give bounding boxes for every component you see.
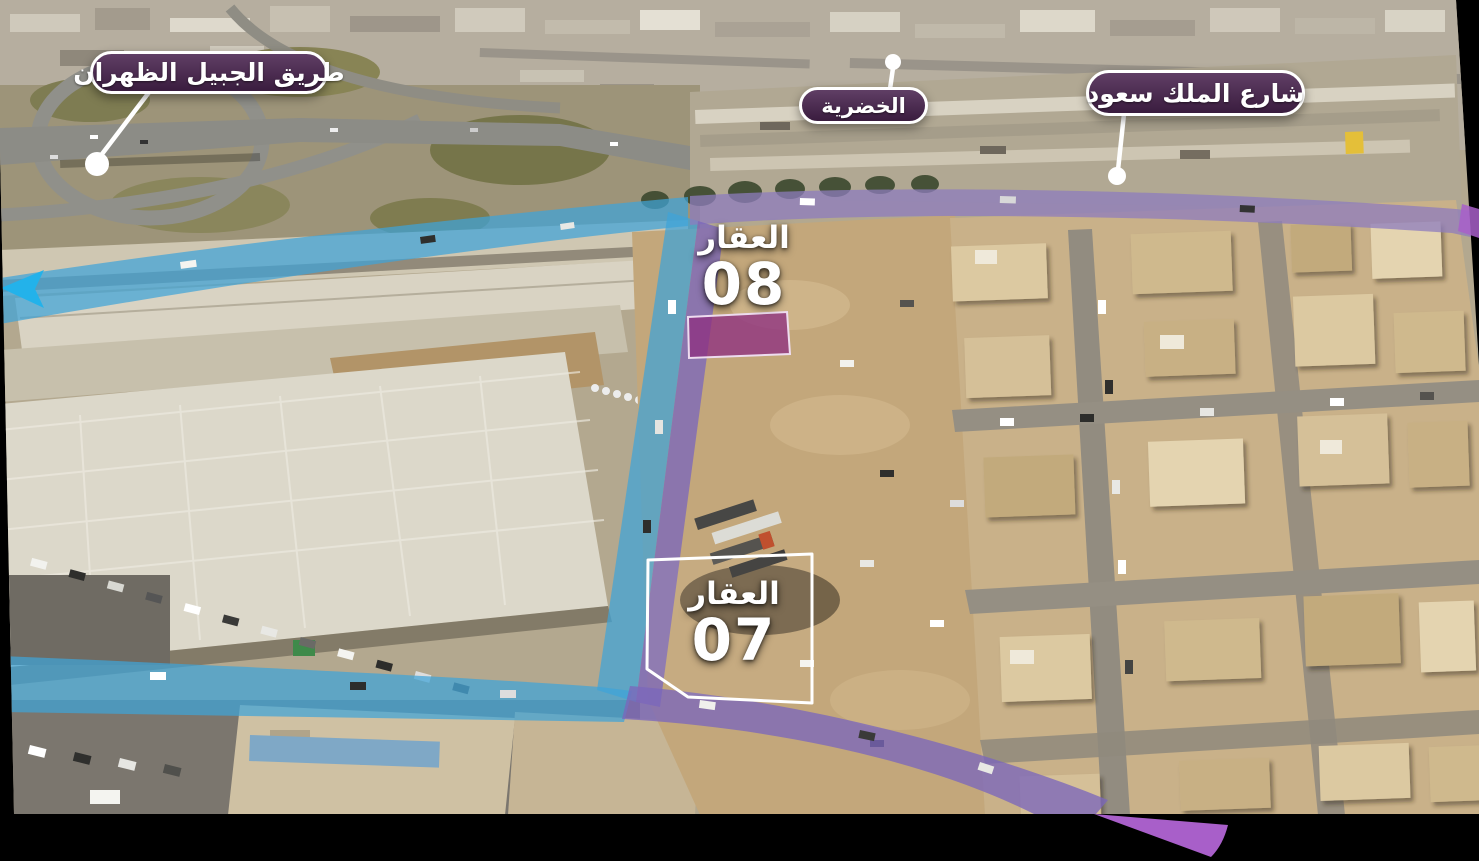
property-number: 07 [648,611,820,669]
callout-dot-jubail [85,152,109,176]
residential-district [950,200,1479,823]
aerial-photo [0,0,1479,823]
callout-al-khudariyah: الخضرية [799,87,928,124]
callout-jubail-dhahran-road: طريق الجبيل الظهران [90,51,328,94]
callout-label: شارع الملك سعود [1086,79,1304,108]
aerial-photo-canvas [0,0,1479,861]
property-08-label: العقار 08 [658,222,830,313]
callout-label: الخضرية [821,94,906,118]
property-number: 08 [658,255,830,313]
callout-label: طريق الجبيل الظهران [73,58,344,87]
aerial-map: طريق الجبيل الظهران الخضرية شارع الملك س… [0,0,1479,861]
callout-dot-khudariyah [885,54,901,70]
callout-king-saud-street: شارع الملك سعود [1086,70,1305,116]
property-08-plot [688,312,790,358]
purple-route-swoosh [1094,814,1228,857]
callout-dot-king-saud [1108,167,1126,185]
property-07-label: العقار 07 [648,578,820,669]
